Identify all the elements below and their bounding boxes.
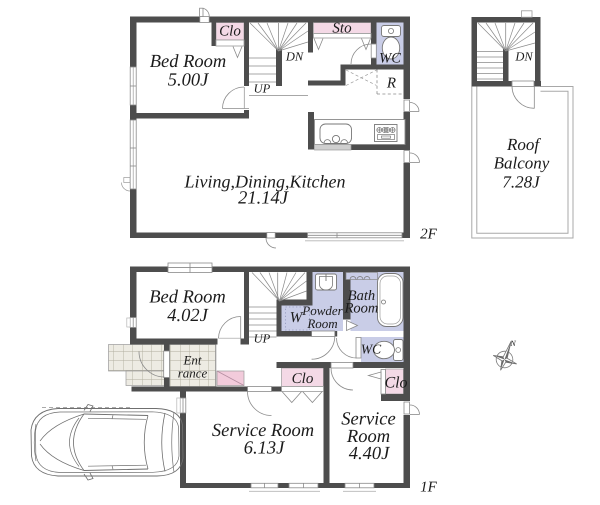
svg-text:Clo: Clo <box>219 24 241 40</box>
svg-text:DN: DN <box>285 50 304 64</box>
svg-text:Roof: Roof <box>506 135 541 154</box>
svg-text:Clo: Clo <box>292 371 314 387</box>
svg-text:R: R <box>386 76 396 92</box>
svg-text:7.28J: 7.28J <box>502 173 541 192</box>
svg-text:2F: 2F <box>420 227 438 243</box>
svg-text:Balcony: Balcony <box>494 154 550 173</box>
svg-text:N: N <box>509 339 516 348</box>
svg-text:Sto: Sto <box>332 21 352 37</box>
svg-text:4.40J: 4.40J <box>349 444 390 464</box>
svg-text:WC: WC <box>379 51 401 67</box>
svg-text:Bed Room: Bed Room <box>150 52 227 72</box>
svg-text:21.14J: 21.14J <box>238 189 289 209</box>
svg-text:UP: UP <box>254 82 271 96</box>
svg-text:Room: Room <box>306 316 337 331</box>
svg-text:1F: 1F <box>420 480 438 496</box>
svg-text:6.13J: 6.13J <box>244 439 285 459</box>
svg-text:UP: UP <box>254 332 271 346</box>
svg-text:DN: DN <box>514 50 533 64</box>
svg-text:Clo: Clo <box>384 375 407 392</box>
svg-text:rance: rance <box>178 366 208 381</box>
svg-text:WC: WC <box>361 342 382 357</box>
svg-text:4.02J: 4.02J <box>167 306 208 326</box>
svg-text:Room: Room <box>344 301 379 317</box>
svg-text:5.00J: 5.00J <box>168 71 209 91</box>
svg-text:Bed Room: Bed Room <box>149 288 226 308</box>
